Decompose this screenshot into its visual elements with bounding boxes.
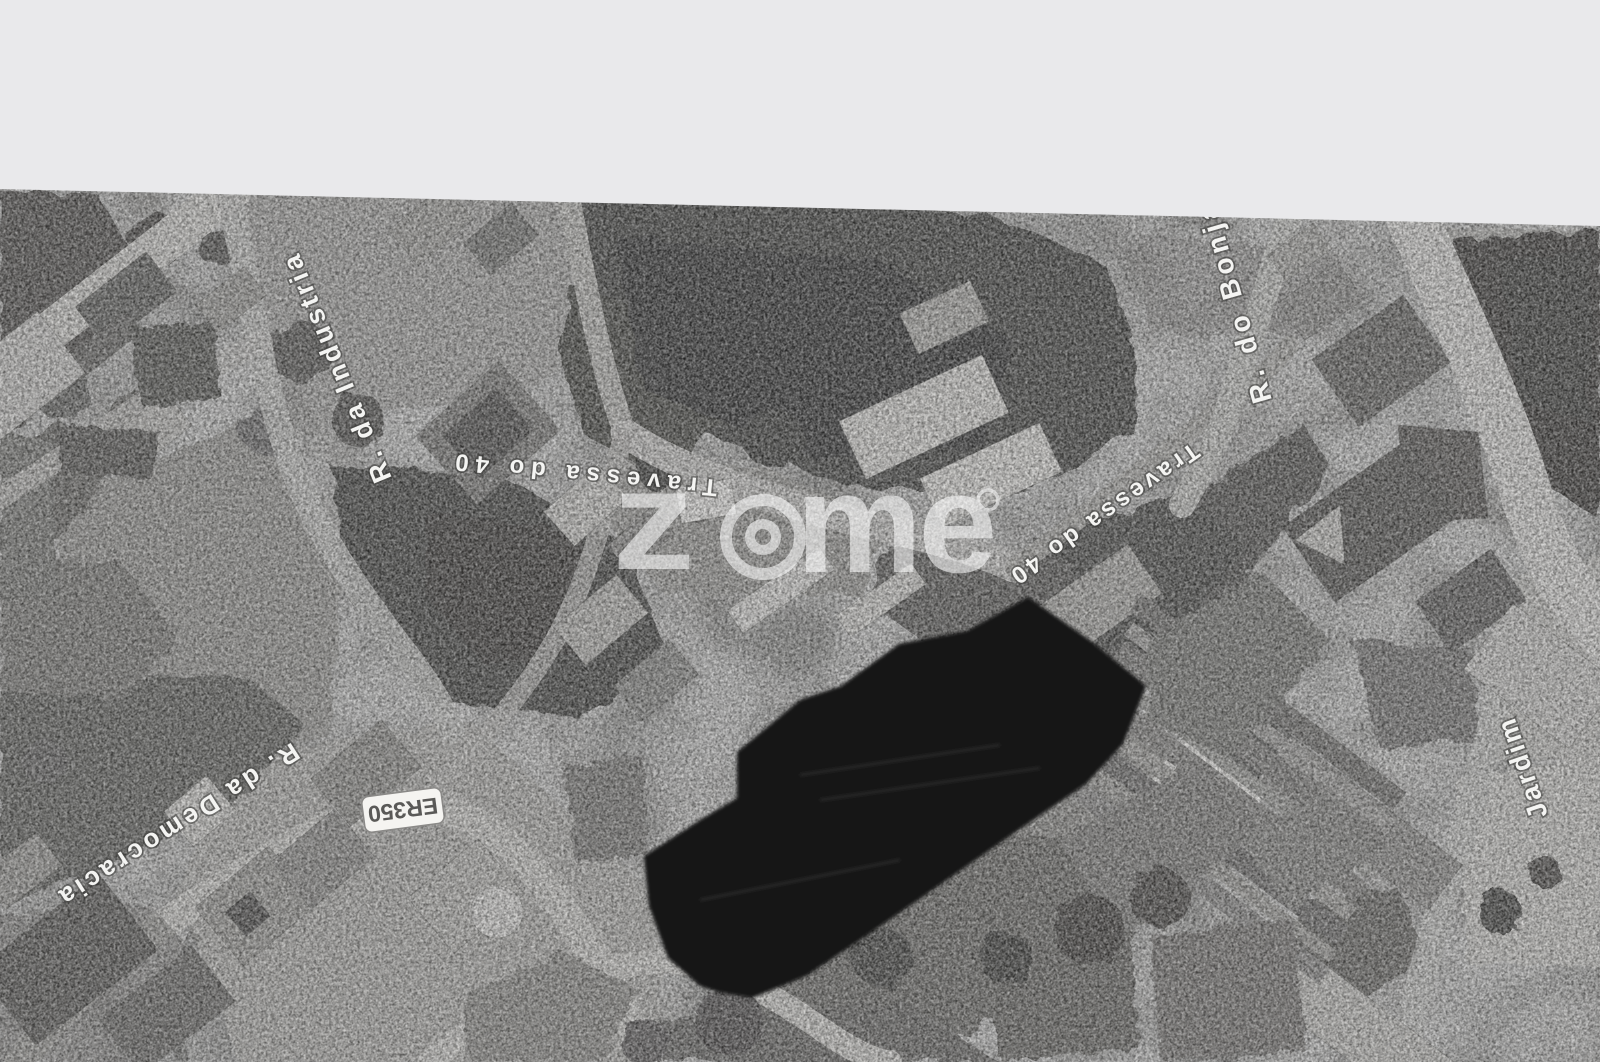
svg-text:z: z xyxy=(612,440,695,599)
svg-text:me: me xyxy=(796,444,993,603)
